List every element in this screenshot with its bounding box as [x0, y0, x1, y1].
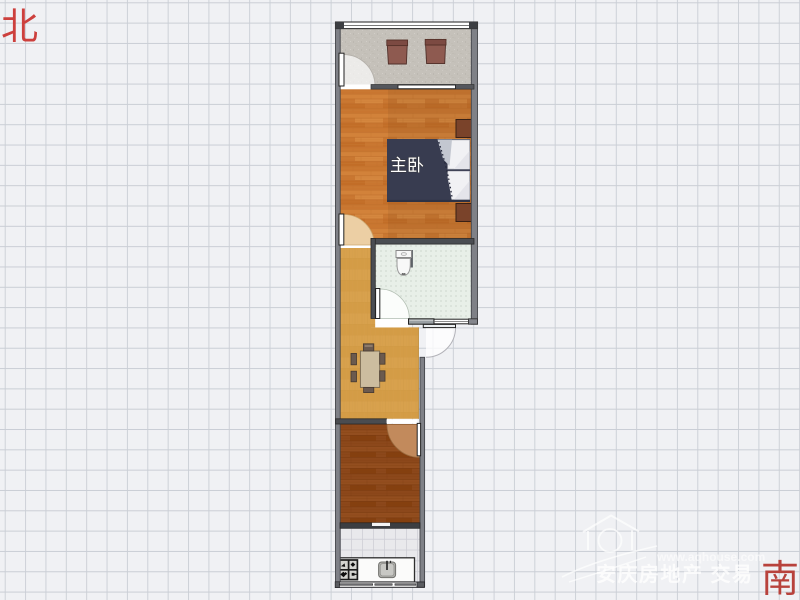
- svg-text:南: 南: [761, 559, 799, 600]
- svg-text:北: 北: [1, 6, 38, 47]
- svg-text:安庆房地产 交易: 安庆房地产 交易: [596, 562, 754, 586]
- svg-text:主卧: 主卧: [390, 156, 424, 175]
- svg-text:www.aqhouse.com: www.aqhouse.com: [656, 550, 765, 564]
